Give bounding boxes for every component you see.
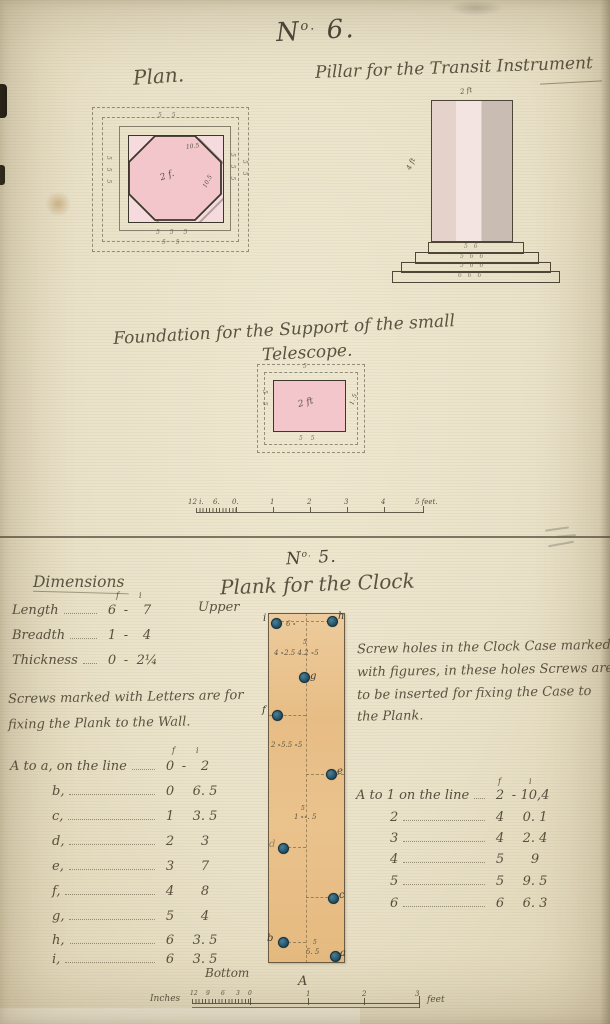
row-inches: 3. 5 [188,952,222,967]
row-label: 4 [390,852,398,867]
row-sep: - [180,759,188,774]
bottom-label: Bottom [205,966,249,980]
dimension-label: Breadth [12,628,65,643]
row-inches: 2 [188,759,222,774]
dimension-sep: - [122,628,130,643]
plan-marks-bottom: 5 5 5 [156,229,191,236]
screw-label-a: a [340,948,346,959]
table-row: A to a, on the line0-2 [10,757,222,774]
plate-title-n: N [275,17,301,48]
manuscript-page: No. 6. Plan. Pillar for the Transit Inst… [0,0,610,1024]
plate-title-no5: No. 5. [286,547,338,570]
row-feet: 2 [160,834,180,849]
table-row: 240. 1 [356,808,552,825]
screw-dot-b [278,937,289,948]
inches-label: Inches [150,994,180,1004]
pillar-caption: Pillar for the Transit Instrument [315,53,593,83]
scale-label-1: 1 [270,498,274,506]
screw-dot-e [326,769,337,780]
row-feet: 6 [490,896,510,911]
hole-figures-bottom-sup: 5 [313,939,317,946]
leader [83,662,97,664]
edge-mark-2 [0,165,5,185]
scale-label-3: 3 [344,498,348,506]
row-inches: 6. 3 [518,896,552,911]
upper-label: Upper [198,600,240,615]
foundation-mark-bottom: 5 5 [299,435,318,442]
pillar-step-mark-3: 5 6 6 [460,262,485,269]
row-label: d, [52,834,64,849]
plan-marks-right2: 5 5 [241,160,248,179]
leader [403,905,485,907]
inches-scale: Inches 12 9 6 3 0 1 2 3 feet [150,991,460,1015]
scale-line [196,512,424,513]
plate-title-no5-num: 5. [318,547,337,568]
hole-figures-top: 6 ∘ [286,620,296,628]
row-inches: 4 [188,909,222,924]
leader [403,819,485,821]
screw-dot-c [328,893,339,904]
dimensions-col-i: i [139,591,142,600]
dimension-inches: 7 [130,603,164,618]
row-inches: 8 [188,884,222,899]
case-note-line3: to be inserted for fixing the Case to [357,684,592,703]
smudge-top [448,0,504,16]
plate-title-no6: No. 6. [275,14,356,48]
section-divider [0,536,610,538]
leader [65,893,155,895]
row-sep: - [510,788,518,803]
feet-digit-2: 2 [362,990,366,998]
no5-subtitle: Plank for the Clock [220,569,415,600]
plate-title-num: 6. [326,14,356,45]
row-inches: 9. 5 [518,874,552,889]
block-digit-3: 3 [236,990,240,997]
leader [403,861,485,863]
feet-label: feet [427,995,445,1005]
dimensions-underline [33,591,129,595]
screw-label-f: f [262,705,266,716]
leader [403,840,485,842]
row-inches: 3 [188,834,222,849]
foundation-mark-left: 5 5 [261,390,268,409]
scale-label-2: 2 [307,498,311,506]
table-row: A to 1 on the line2-10,4 [356,786,552,803]
table-row: d,23 [10,832,222,849]
scale-label-12i: 12 i. [188,498,204,506]
row-label: f, [52,884,60,899]
scale-tick [364,998,365,1005]
row-inches: 7 [188,859,222,874]
screw-dot-f [272,710,283,721]
table-row: g,54 [10,907,222,924]
plank-a-label: A [298,974,307,989]
scale-label-6: 6. [213,498,220,506]
row-feet: 0 [160,759,180,774]
row-inches: 0. 1 [518,810,552,825]
plank-dash-b [288,942,306,943]
row-feet: 4 [160,884,180,899]
block-digit-12: 12 [190,990,198,997]
screw-label-d: d [269,839,275,850]
hole-figures-row2-sup: 5 [303,639,307,646]
pencil-smudge [545,526,569,531]
left-table-col-f: f [172,746,175,755]
row-inches: 3. 5 [188,933,222,948]
dimension-sep: - [122,603,130,618]
pillar-step-mark-4: 6 6 6 [458,272,483,279]
hole-figures-row3: 2 ∘5.5 ∘5 [271,741,302,749]
row-label: 2 [390,810,398,825]
wall-note-line1: Screws marked with Letters are for [8,688,244,707]
scale-label-4: 4 [381,498,385,506]
row-feet: 0 [160,784,180,799]
right-edge-shading [600,0,610,1024]
row-label: h, [52,933,65,948]
wall-note-line2: fixing the Plank to the Wall. [8,714,191,732]
scale-tick [250,998,251,1005]
scale-label-0: 0. [232,498,239,506]
row-feet: 1 [160,809,180,824]
scale-band [192,1003,420,1008]
table-row: 342. 4 [356,829,552,846]
screw-dot-h [327,616,338,627]
dimension-feet: 1 [102,628,122,643]
pillar-caption-underline [540,80,602,84]
foundation-mark-top: 5 [303,363,307,370]
stain-spot [46,190,70,218]
scale-tick [419,996,420,1008]
row-label: A to 1 on the line [356,788,469,803]
screw-dot-i [271,618,282,629]
hole-figures-row4: 1 ∘∘. 5 [294,813,316,821]
row-inches: 2. 4 [518,831,552,846]
plan-marks-top: 5 5 [158,112,180,119]
left-table-col-i: i [196,746,199,755]
case-note-line4: the Plank. [357,708,424,724]
scale-tick [384,507,385,512]
pencil-smudge [548,541,574,547]
row-label: c, [52,809,63,824]
table-row: c,13. 5 [10,807,222,824]
row-feet: 5 [160,909,180,924]
dimension-label: Length [12,603,59,618]
scale-tick [347,507,348,512]
leader [69,868,155,870]
dimension-row: Thickness0-2¼ [12,651,164,668]
plate-title-sup: o. [300,18,316,34]
table-row: 459 [356,850,552,867]
row-feet: 6 [160,933,180,948]
scale-tick [423,506,424,513]
leader [132,768,155,770]
dimension-feet: 0 [102,653,122,668]
scale-tick [236,507,237,512]
dimension-inches: 4 [130,628,164,643]
screw-dot-g [299,672,310,683]
table-row: h,63. 5 [10,931,222,948]
scale-fine-block [192,999,250,1003]
row-inches: 3. 5 [188,809,222,824]
row-feet: 5 [490,852,510,867]
leader [70,637,97,639]
row-feet: 3 [160,859,180,874]
screw-label-b: b [267,933,273,944]
row-label: e, [52,859,64,874]
right-table-col-f: f [498,777,501,786]
table-row: f,48 [10,882,222,899]
screw-label-g: g [310,671,316,682]
leader [70,942,155,944]
hole-figures-row4-sup: 5 [301,805,305,812]
plan-marks-bottom2: 5 5 [162,239,184,246]
pillar-column [431,100,513,242]
table-row: i,63. 5 [10,950,222,967]
screw-label-e: e [337,766,343,777]
pillar-step-mark-1: 5 6 [464,243,480,250]
plan-marks-right: 5 5 5 [229,153,236,183]
block-digit-6: 6 [221,990,225,997]
plank-centerline [306,613,307,963]
leader [69,843,155,845]
table-row: b,06. 5 [10,782,222,799]
screw-dot-d [278,843,289,854]
row-inches: 10,4 [518,788,552,803]
row-label: b, [52,784,64,799]
scale-label-5feet: 5 feet. [415,498,438,506]
leader [403,883,485,885]
dimensions-heading: Dimensions [33,573,124,591]
pillar-step-mark-2: 5 6 6 [460,253,485,260]
block-digit-0: 0 [248,990,252,997]
row-label: i, [52,952,60,967]
dimensions-col-f: f [116,591,119,600]
table-row: e,37 [10,857,222,874]
hole-figures-bottom: 5. 5 [306,948,319,956]
plan-caption: Plan. [132,62,185,90]
leader [474,797,485,799]
edge-mark-1 [0,84,7,118]
screw-label-i: i [263,613,266,624]
row-feet: 4 [490,810,510,825]
leader [69,918,155,920]
plate-title-no5-sup: o. [301,549,312,560]
scale-tick [308,998,309,1005]
leader [69,793,155,795]
row-inches: 6. 5 [188,784,222,799]
right-table-col-i: i [529,777,532,786]
plank-dash-d [288,847,306,848]
plate-title-no5-n: N [286,549,303,570]
dimension-label: Thickness [12,653,78,668]
row-feet: 6 [160,952,180,967]
screw-label-h: h [338,611,344,622]
dimension-row: Breadth1-4 [12,626,164,643]
row-feet: 2 [490,788,510,803]
row-label: 6 [390,896,398,911]
pillar-top-dim: 2 ft [459,86,472,96]
scale-tick [273,507,274,512]
dimension-feet: 6 [102,603,122,618]
dimension-inches: 2¼ [130,653,164,668]
pillar-side-dim: 4 ft [405,157,417,171]
row-label: 3 [390,831,398,846]
scale-tick [310,507,311,512]
feet-scale: 12 i. 6. 0. 1 2 3 4 5 feet. [188,498,468,520]
table-row: 559. 5 [356,872,552,889]
row-inches: 9 [518,852,552,867]
row-feet: 5 [490,874,510,889]
block-digit-9: 9 [206,990,210,997]
row-label: 5 [390,874,398,889]
table-row: 666. 3 [356,894,552,911]
case-note-line1: Screw holes in the Clock Case marked [357,638,610,657]
row-label: g, [52,909,64,924]
case-note-line2: with figures, in these holes Screws are [357,661,610,680]
feet-digit-1: 1 [306,990,310,998]
row-feet: 4 [490,831,510,846]
leader [64,612,97,614]
row-label: A to a, on the line [10,759,127,774]
hole-figures-row2: 4 ∘2.5 4.2 ∘5 [274,649,319,657]
dimension-sep: - [122,653,130,668]
foundation-caption-line2: Telescope. [262,341,353,366]
leader [65,961,155,963]
leader [68,818,155,820]
dimension-row: Length6-7 [12,601,164,618]
plan-marks-left: 5 5 5 [105,156,112,186]
scale-fine-block [196,508,236,512]
screw-label-c: c [339,890,345,901]
